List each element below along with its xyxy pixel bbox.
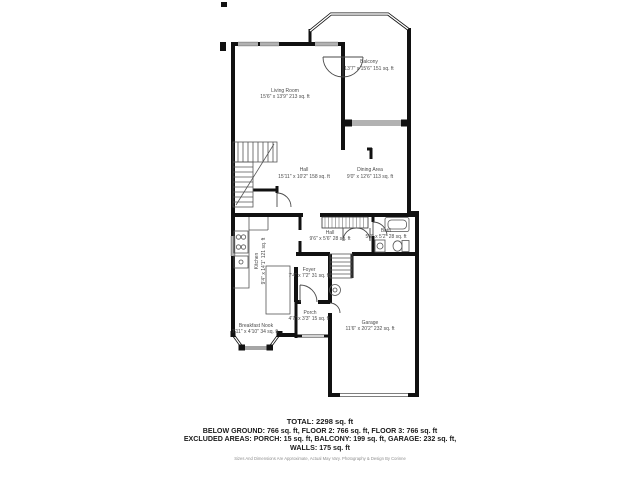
exterior-walls	[233, 28, 417, 397]
garage-dims: 11'6" x 20'2" 232 sq. ft	[345, 326, 395, 332]
windows	[230, 41, 409, 396]
stair-closet-door	[277, 193, 291, 207]
front-door	[300, 285, 317, 302]
porch-dims: 4'7" x 3'3" 15 sq. ft	[288, 316, 330, 322]
kitchen-sink	[234, 256, 248, 268]
dining-area-label: Dining Area	[357, 167, 383, 173]
hall-upper-dims: 15'11" x 10'2" 158 sq. ft	[278, 174, 330, 180]
staircase-main	[233, 142, 277, 207]
hall-upper-label: Hall	[300, 167, 309, 173]
bath-sink	[375, 240, 385, 252]
breakfast-nook-dims: 7'11" x 4'10" 34 sq. ft	[232, 329, 279, 335]
dining-area-dims: 9'0" x 12'6" 113 sq. ft	[347, 174, 394, 180]
garage-side-door	[330, 303, 340, 313]
disclaimer: Sizes And Dimensions Are Approximate, Ac…	[0, 456, 640, 461]
kitchen-dims: 9'4" x 14'1" 121 sq. ft	[261, 237, 267, 284]
floor-plan-canvas: Living Room 15'6" x 13'9" 213 sq. ft Bal…	[0, 0, 640, 480]
living-room-dims: 15'6" x 13'9" 213 sq. ft	[260, 94, 310, 100]
walls-area: WALLS: 175 sq. ft	[0, 444, 640, 453]
floor-plan-page: Living Room 15'6" x 13'9" 213 sq. ft Bal…	[0, 0, 640, 480]
bath-dims: 5'2" x 5'2" 28 sq. ft	[365, 234, 407, 240]
foyer-dims: 7'4" x 7'2" 31 sq. ft	[288, 273, 330, 279]
excluded-areas: EXCLUDED AREAS: PORCH: 15 sq. ft, BALCON…	[0, 435, 640, 444]
balcony-railing	[310, 14, 408, 31]
party-wall-ticks	[220, 2, 227, 51]
area-summary: TOTAL: 2298 sq. ft BELOW GROUND: 766 sq.…	[0, 417, 640, 461]
closet	[322, 217, 368, 228]
hall-lower-dims: 9'6" x 5'6" 28 sq. ft	[309, 236, 351, 242]
kitchen-island	[266, 266, 290, 314]
toilet	[393, 241, 409, 252]
balcony-dims: 13'7" x 15'6" 151 sq. ft	[344, 66, 394, 72]
floor-areas: BELOW GROUND: 766 sq. ft, FLOOR 2: 766 s…	[0, 427, 640, 436]
kitchen-label: Kitchen	[254, 252, 260, 269]
balcony-label: Balcony	[360, 59, 378, 65]
room-labels: Living Room 15'6" x 13'9" 213 sq. ft Bal…	[232, 59, 407, 335]
total-area: TOTAL: 2298 sq. ft	[0, 417, 640, 427]
stove	[234, 231, 248, 253]
staircase-basement	[330, 254, 352, 278]
